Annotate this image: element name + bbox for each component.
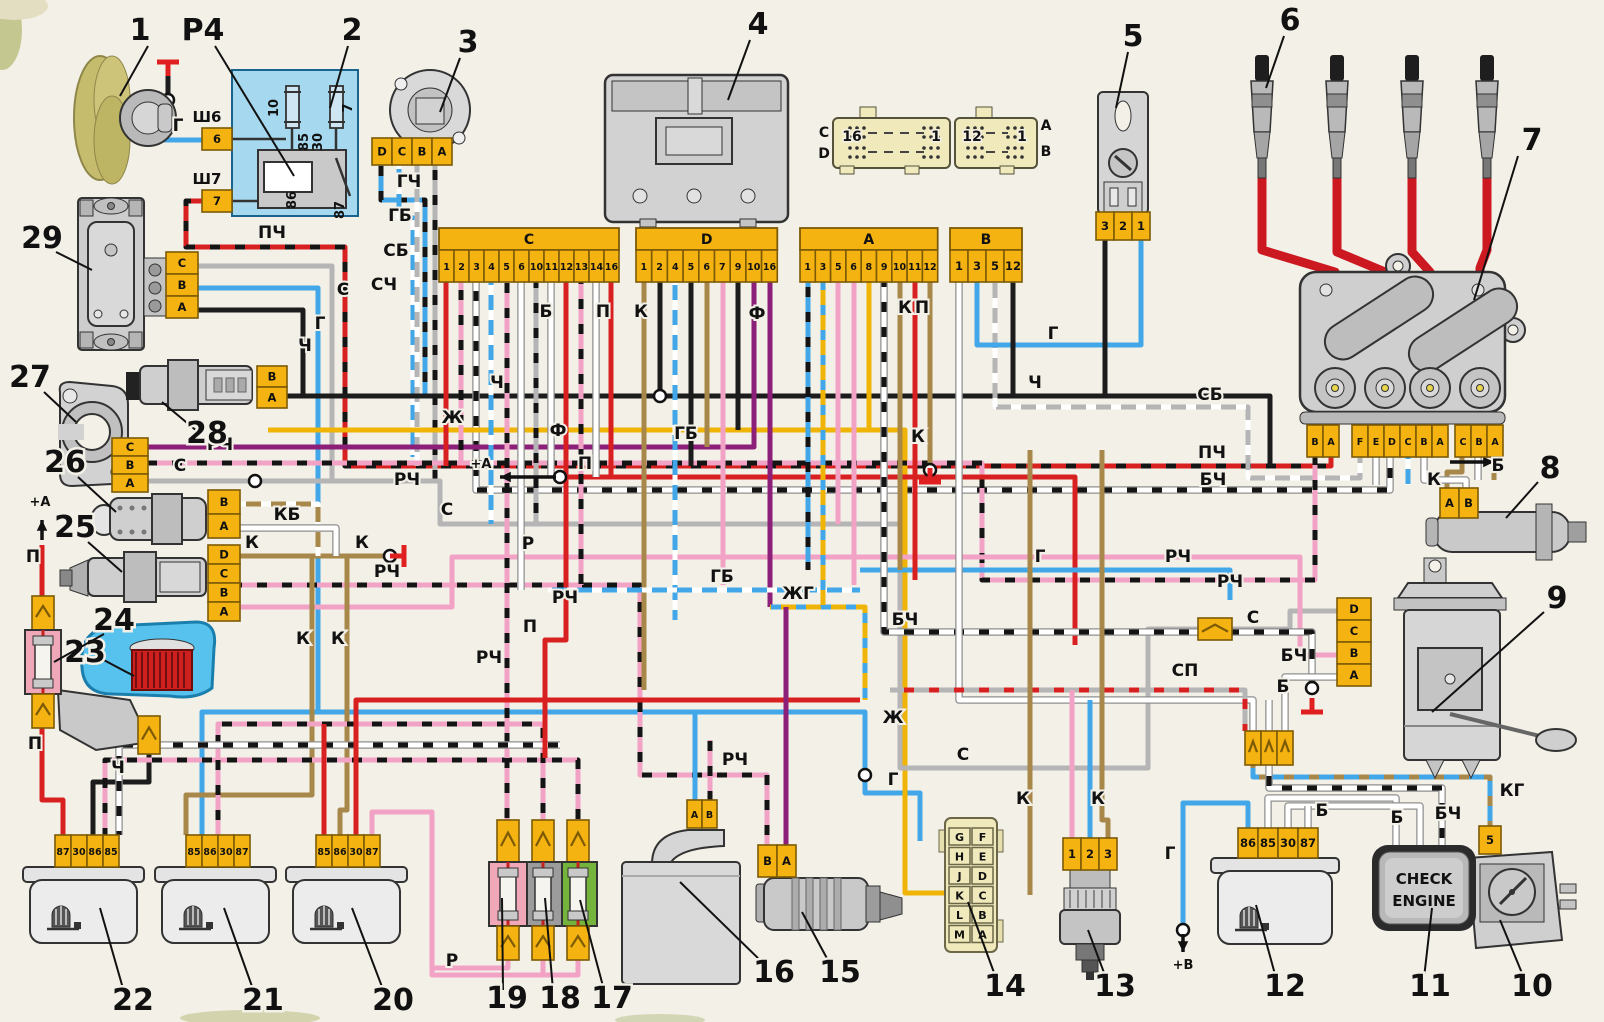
svg-text:К: К <box>1091 789 1105 809</box>
svg-text:D: D <box>377 145 387 159</box>
svg-text:Р4: Р4 <box>182 13 225 48</box>
svg-text:H: H <box>955 851 964 864</box>
svg-text:A: A <box>782 854 791 868</box>
svg-text:B: B <box>1311 437 1318 448</box>
svg-text:4: 4 <box>748 7 769 42</box>
svg-text:2: 2 <box>1119 219 1127 233</box>
svg-text:12: 12 <box>923 262 936 273</box>
conn-inj15: BA <box>758 845 796 877</box>
svg-text:85: 85 <box>317 847 330 858</box>
svg-text:К: К <box>1016 789 1030 809</box>
conn-sensor26: BA <box>208 490 240 538</box>
junction-dot <box>859 769 871 781</box>
svg-text:14: 14 <box>984 969 1026 1004</box>
svg-text:A: A <box>220 605 229 619</box>
svg-text:С: С <box>1247 608 1259 628</box>
module7-conn-cba: CBA <box>1455 425 1503 457</box>
svg-text:Г: Г <box>1035 547 1046 567</box>
svg-text:С: С <box>441 500 453 520</box>
svg-text:Г: Г <box>888 770 899 790</box>
svg-text:1: 1 <box>804 262 811 273</box>
svg-text:5: 5 <box>835 262 842 273</box>
svg-text:15: 15 <box>819 955 861 990</box>
svg-text:A: A <box>1327 437 1335 448</box>
svg-text:2: 2 <box>1086 847 1094 861</box>
svg-text:11: 11 <box>1409 969 1451 1004</box>
svg-text:A: A <box>1445 496 1454 510</box>
svg-text:D: D <box>701 232 713 248</box>
svg-text:6: 6 <box>213 132 221 146</box>
svg-text:4: 4 <box>488 262 495 273</box>
svg-text:Ч: Ч <box>1028 373 1042 393</box>
relay-12 <box>1211 858 1339 944</box>
svg-text:D: D <box>1349 602 1359 616</box>
svg-text:C: C <box>1460 437 1467 448</box>
svg-text:К: К <box>331 629 345 649</box>
svg-text:B: B <box>268 370 277 384</box>
svg-text:СЧ: СЧ <box>371 275 397 295</box>
svg-text:П: П <box>578 454 592 474</box>
svg-text:П: П <box>26 547 40 567</box>
svg-text:K: K <box>955 890 964 903</box>
ecu-strip-c: C123456101112131416 <box>439 228 619 282</box>
svg-text:C: C <box>978 890 986 903</box>
wiring-diagram-page: 10857308687CD161121ABCHECKENGINEGFHEJDKC… <box>0 0 1604 1022</box>
svg-text:РЧ: РЧ <box>1217 572 1243 592</box>
svg-text:2: 2 <box>656 262 663 273</box>
svg-text:C: C <box>1350 624 1358 638</box>
svg-text:24: 24 <box>93 603 135 638</box>
svg-text:БЧ: БЧ <box>1281 646 1308 666</box>
svg-text:ГЧ: ГЧ <box>397 172 422 192</box>
svg-text:12: 12 <box>560 262 573 273</box>
svg-text:9: 9 <box>735 262 742 273</box>
svg-text:87: 87 <box>333 201 348 219</box>
svg-text:РЧ: РЧ <box>1165 547 1191 567</box>
ecu-strip-a: A135689101112 <box>800 228 938 282</box>
svg-text:7: 7 <box>341 103 356 112</box>
svg-text:A: A <box>178 300 187 314</box>
svg-text:16: 16 <box>842 129 861 145</box>
svg-text:C: C <box>1405 437 1412 448</box>
svg-text:87: 87 <box>56 847 69 858</box>
relay20-pins: 85863087 <box>316 835 380 867</box>
svg-text:30: 30 <box>311 133 326 151</box>
conn-module29: CBA <box>166 252 198 318</box>
svg-text:К: К <box>911 427 925 447</box>
svg-text:86: 86 <box>203 847 217 858</box>
svg-text:СБ: СБ <box>1197 385 1222 405</box>
ignition-module-7 <box>1300 254 1525 424</box>
conn-sh6: 6 <box>202 128 232 150</box>
svg-text:B: B <box>981 232 992 248</box>
svg-text:B: B <box>763 854 772 868</box>
svg-text:20: 20 <box>372 983 414 1018</box>
svg-text:С: С <box>957 745 969 765</box>
svg-text:C: C <box>178 256 186 270</box>
svg-text:Ч: Ч <box>298 336 312 356</box>
svg-text:B: B <box>220 495 229 509</box>
svg-text:Б: Б <box>540 302 553 322</box>
svg-text:E: E <box>1373 437 1380 448</box>
svg-text:ПЧ: ПЧ <box>258 223 286 243</box>
svg-text:85: 85 <box>1260 836 1276 850</box>
conn-pump9: DCBA <box>1337 598 1371 686</box>
module7-conn-ba: BA <box>1307 425 1339 457</box>
conn-sensor28: BA <box>257 366 287 408</box>
svg-text:CHECK: CHECK <box>1396 870 1454 888</box>
svg-text:Г: Г <box>315 314 326 334</box>
svg-text:КБ: КБ <box>274 505 301 525</box>
svg-text:3: 3 <box>473 262 480 273</box>
svg-text:7: 7 <box>1522 123 1543 158</box>
conn-inline-c <box>1198 618 1232 640</box>
svg-text:30: 30 <box>219 847 233 858</box>
svg-text:87: 87 <box>1300 836 1316 850</box>
svg-text:3: 3 <box>973 259 981 273</box>
svg-text:11: 11 <box>545 262 558 273</box>
svg-text:C: C <box>819 125 829 141</box>
svg-text:85: 85 <box>187 847 200 858</box>
svg-text:РЧ: РЧ <box>552 588 578 608</box>
svg-text:12: 12 <box>962 129 981 145</box>
svg-text:Ш7: Ш7 <box>193 170 222 188</box>
svg-text:B: B <box>978 909 986 922</box>
svg-text:К: К <box>296 629 310 649</box>
svg-text:6: 6 <box>850 262 857 273</box>
svg-text:8: 8 <box>1540 451 1561 486</box>
svg-text:СБ: СБ <box>383 241 408 261</box>
svg-text:РЧ: РЧ <box>394 470 420 490</box>
svg-text:РЧ: РЧ <box>722 750 748 770</box>
svg-text:3: 3 <box>820 262 827 273</box>
svg-text:16: 16 <box>605 262 619 273</box>
svg-text:A: A <box>1350 668 1359 682</box>
svg-text:19: 19 <box>486 981 528 1016</box>
conn-sensor25: DCBA <box>208 545 240 621</box>
junction-block <box>1245 731 1293 765</box>
conn-throttle <box>138 716 160 754</box>
svg-text:Б: Б <box>1391 808 1404 828</box>
svg-text:2: 2 <box>458 262 465 273</box>
svg-text:Р: Р <box>522 534 534 554</box>
ecu-strip-d: D12456791016 <box>636 228 777 282</box>
svg-text:B: B <box>1420 437 1427 448</box>
svg-text:28: 28 <box>186 416 228 451</box>
svg-text:3: 3 <box>458 25 479 60</box>
svg-text:1: 1 <box>1068 847 1076 861</box>
svg-text:85: 85 <box>297 133 312 151</box>
svg-text:П: П <box>523 617 537 637</box>
svg-text:П: П <box>28 734 42 754</box>
svg-text:B: B <box>418 145 427 159</box>
svg-text:12: 12 <box>1005 259 1021 273</box>
svg-text:1: 1 <box>443 262 450 273</box>
svg-text:6: 6 <box>518 262 525 273</box>
svg-text:К: К <box>634 302 648 322</box>
svg-text:B: B <box>706 810 713 821</box>
conn-sensor5: 321 <box>1096 212 1150 240</box>
svg-text:C: C <box>126 440 134 454</box>
svg-text:G: G <box>955 831 964 844</box>
svg-text:ЖГ: ЖГ <box>782 584 814 604</box>
check-engine-lamp-11: CHECKENGINE <box>1372 845 1476 931</box>
knock-sensor-28 <box>126 360 252 410</box>
svg-text:13: 13 <box>1094 969 1136 1004</box>
svg-text:E: E <box>979 851 987 864</box>
svg-text:30: 30 <box>349 847 363 858</box>
svg-text:12: 12 <box>1264 969 1306 1004</box>
svg-text:Ч: Ч <box>490 373 504 393</box>
svg-text:1: 1 <box>130 13 151 48</box>
svg-text:85: 85 <box>104 847 117 858</box>
relay-22 <box>23 867 144 943</box>
conn-speed13: 123 <box>1063 838 1117 870</box>
conn-tank16: AB <box>687 800 717 828</box>
svg-text:БЧ: БЧ <box>1435 804 1462 824</box>
svg-text:B: B <box>1041 144 1052 160</box>
svg-text:A: A <box>126 476 135 490</box>
svg-text:+А: +А <box>471 457 492 472</box>
svg-text:A: A <box>1041 118 1052 134</box>
relay12-pins: 86853087 <box>1238 828 1318 858</box>
relay-21 <box>155 867 276 943</box>
svg-text:БЧ: БЧ <box>892 610 919 630</box>
svg-text:26: 26 <box>44 445 86 480</box>
svg-text:П: П <box>915 298 929 318</box>
ecu-strip-b: B13512 <box>950 228 1022 282</box>
relay22-pins: 87308685 <box>55 835 119 867</box>
svg-text:18: 18 <box>539 981 581 1016</box>
svg-text:11: 11 <box>908 262 921 273</box>
svg-text:17: 17 <box>591 981 633 1016</box>
module7-conn-fedcba: FEDCBA <box>1352 425 1448 457</box>
svg-text:B: B <box>1464 496 1473 510</box>
svg-text:B: B <box>178 278 187 292</box>
svg-text:9: 9 <box>1547 581 1568 616</box>
svg-text:К: К <box>355 533 369 553</box>
ecu-connector-pinout-view: CD161121AB <box>818 107 1051 174</box>
svg-text:C: C <box>398 145 406 159</box>
ecu-controller-4 <box>605 75 788 227</box>
svg-text:1: 1 <box>1137 219 1145 233</box>
svg-text:Ш6: Ш6 <box>193 108 222 126</box>
svg-text:Б: Б <box>1316 801 1329 821</box>
svg-text:F: F <box>979 831 987 844</box>
conn-tacho: 5 <box>1479 826 1501 854</box>
svg-text:A: A <box>1436 437 1444 448</box>
svg-text:ГБ: ГБ <box>710 567 734 587</box>
svg-text:B: B <box>1475 437 1482 448</box>
conn-sensor27: CBA <box>112 438 148 492</box>
svg-text:30: 30 <box>1280 836 1296 850</box>
svg-text:ГБ: ГБ <box>388 206 412 226</box>
main-relay-2: 10857308687 <box>232 70 358 219</box>
svg-text:D: D <box>978 870 987 883</box>
svg-text:1: 1 <box>1017 129 1027 145</box>
svg-text:C: C <box>524 232 534 248</box>
svg-text:ПЧ: ПЧ <box>1198 443 1226 463</box>
conn-sh7: 7 <box>202 190 232 212</box>
svg-text:86: 86 <box>1240 836 1256 850</box>
svg-text:П: П <box>596 302 610 322</box>
svg-text:Б: Б <box>1277 677 1290 697</box>
svg-text:+А: +А <box>30 495 51 510</box>
svg-text:A: A <box>863 232 874 248</box>
svg-text:L: L <box>956 909 963 922</box>
svg-text:25: 25 <box>54 510 96 545</box>
junction-dot <box>654 390 666 402</box>
svg-text:A: A <box>268 391 277 405</box>
svg-text:10: 10 <box>267 99 282 117</box>
svg-text:87: 87 <box>365 847 378 858</box>
svg-text:14: 14 <box>590 262 604 273</box>
svg-text:3: 3 <box>1104 847 1112 861</box>
wiring-diagram: 10857308687CD161121ABCHECKENGINEGFHEJDKC… <box>0 0 1604 1022</box>
svg-text:Г: Г <box>1048 324 1059 344</box>
svg-text:5: 5 <box>1123 19 1144 54</box>
svg-text:4: 4 <box>672 262 679 273</box>
relay-20 <box>286 867 407 943</box>
svg-text:2: 2 <box>342 13 363 48</box>
svg-text:10: 10 <box>747 262 761 273</box>
svg-text:1: 1 <box>931 129 941 145</box>
svg-text:86: 86 <box>285 191 300 209</box>
svg-text:ГБ: ГБ <box>674 424 698 444</box>
svg-text:6: 6 <box>1280 3 1301 38</box>
svg-text:5: 5 <box>991 259 999 273</box>
svg-text:B: B <box>1350 646 1359 660</box>
svg-text:A: A <box>438 145 447 159</box>
svg-text:8: 8 <box>866 262 873 273</box>
svg-text:B: B <box>220 586 229 600</box>
svg-text:Ж: Ж <box>442 408 463 428</box>
conn-sensor3: DCBA <box>372 138 452 165</box>
svg-text:13: 13 <box>575 262 588 273</box>
svg-text:К: К <box>245 533 259 553</box>
svg-text:M: M <box>954 929 965 942</box>
svg-text:Р: Р <box>446 951 458 971</box>
svg-text:РЧ: РЧ <box>374 562 400 582</box>
svg-text:B: B <box>126 458 135 472</box>
svg-text:9: 9 <box>881 262 888 273</box>
svg-text:7: 7 <box>213 194 221 208</box>
svg-text:ENGINE: ENGINE <box>1392 892 1456 910</box>
injector-15 <box>756 878 902 930</box>
svg-text:86: 86 <box>333 847 347 858</box>
svg-text:РЧ: РЧ <box>476 648 502 668</box>
svg-text:БЧ: БЧ <box>1200 470 1227 490</box>
svg-text:Ч: Ч <box>111 758 125 778</box>
svg-text:6: 6 <box>703 262 710 273</box>
svg-text:5: 5 <box>503 262 510 273</box>
svg-text:Ф: Ф <box>749 304 766 324</box>
sensor-5 <box>1098 92 1148 214</box>
svg-text:27: 27 <box>9 360 51 395</box>
svg-text:A: A <box>1491 437 1499 448</box>
svg-text:7: 7 <box>719 262 726 273</box>
svg-text:Ф: Ф <box>550 421 567 441</box>
conn-iac8: AB <box>1440 488 1478 518</box>
junction-dot <box>1306 682 1318 694</box>
svg-text:D: D <box>818 146 830 162</box>
svg-text:86: 86 <box>88 847 102 858</box>
svg-text:5: 5 <box>1486 833 1494 847</box>
svg-text:A: A <box>691 810 699 821</box>
svg-text:5: 5 <box>688 262 695 273</box>
junction-dot <box>249 475 261 487</box>
svg-text:10: 10 <box>893 262 907 273</box>
svg-text:10: 10 <box>530 262 544 273</box>
svg-text:22: 22 <box>112 983 154 1018</box>
svg-text:Б: Б <box>1492 456 1505 476</box>
svg-text:+В: +В <box>1173 958 1194 973</box>
svg-text:КГ: КГ <box>1500 781 1525 801</box>
svg-text:С: С <box>337 280 349 300</box>
svg-text:Ж: Ж <box>883 708 904 728</box>
svg-text:Г: Г <box>173 116 184 136</box>
svg-text:J: J <box>956 870 961 883</box>
svg-text:16: 16 <box>763 262 777 273</box>
svg-text:21: 21 <box>242 983 284 1018</box>
svg-text:1: 1 <box>955 259 963 273</box>
svg-text:F: F <box>1357 437 1364 448</box>
svg-text:30: 30 <box>72 847 86 858</box>
svg-text:К: К <box>1427 470 1441 490</box>
svg-text:87: 87 <box>235 847 248 858</box>
svg-text:СП: СП <box>1172 661 1199 681</box>
svg-text:16: 16 <box>753 955 795 990</box>
svg-text:3: 3 <box>1101 219 1109 233</box>
svg-text:29: 29 <box>21 221 63 256</box>
svg-text:D: D <box>1388 437 1396 448</box>
svg-text:1: 1 <box>641 262 648 273</box>
svg-text:С: С <box>174 456 186 476</box>
diagnostic-connector-14: GFHEJDKCLBMA <box>939 818 1003 952</box>
svg-text:D: D <box>219 548 229 562</box>
svg-text:C: C <box>220 567 228 581</box>
svg-text:A: A <box>220 519 229 533</box>
relay21-pins: 85863087 <box>186 835 250 867</box>
svg-text:К: К <box>898 298 912 318</box>
svg-text:10: 10 <box>1511 969 1553 1004</box>
svg-text:Г: Г <box>1165 844 1176 864</box>
